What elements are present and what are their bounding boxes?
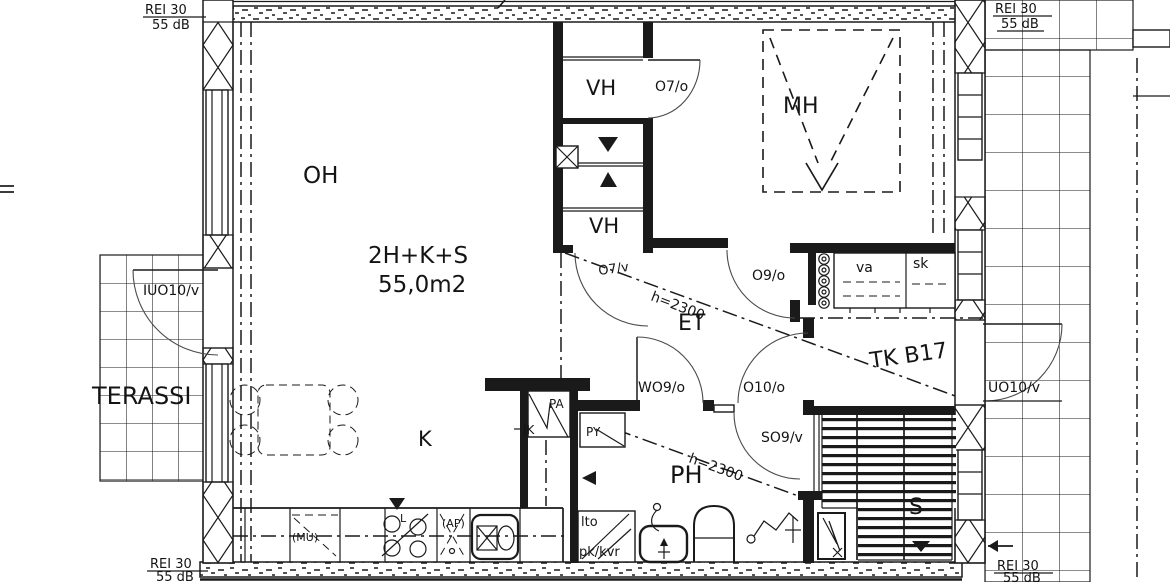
- fixture-label-stove: L: [400, 512, 407, 525]
- fire-rating-label-top-right: REI 30: [995, 2, 1037, 17]
- fixture-label-freezer: PA: [549, 397, 564, 411]
- fixture-label-cleaning-cabinet: sk: [913, 256, 929, 272]
- unit-type-label: 2H+K+S: [368, 243, 468, 269]
- hall-cabinets: [819, 253, 955, 313]
- room-label-terrace: TERASSI: [91, 382, 192, 410]
- door-label-bathroom: WO9/o: [638, 380, 685, 396]
- window-left-lower: [206, 364, 228, 482]
- floor-plan-drawing: REI 30 55 dB REI 30 55 dB REI 30 55 dB R…: [0, 0, 1170, 582]
- window-right-lower: [958, 450, 982, 520]
- room-label-sauna: S: [909, 495, 923, 520]
- room-label-closet-lower: VH: [589, 214, 619, 238]
- balcony-step: [1133, 30, 1170, 47]
- sound-rating-label-top-right: 55 dB: [1001, 17, 1039, 32]
- room-label-kitchen: K: [418, 427, 433, 451]
- room-label-bedroom: MH: [783, 94, 819, 119]
- sauna-interior: [818, 415, 956, 560]
- door-label-balcony: UO10/v: [988, 380, 1040, 396]
- door-label-sauna: SO9/v: [761, 430, 803, 446]
- unit-area-label: 55,0m2: [378, 272, 466, 298]
- fixture-label-wardrobe: va: [856, 260, 873, 276]
- sauna-heater-icon: [818, 513, 845, 559]
- door-label-hall: O10/o: [743, 380, 785, 396]
- fixture-label-heat-recovery: lto: [581, 515, 598, 530]
- fixture-label-washer-dryer: pk/kvr: [579, 545, 620, 560]
- floor-plan: REI 30 55 dB REI 30 55 dB REI 30 55 dB R…: [0, 0, 1170, 582]
- fixture-label-dishwasher: (AP): [442, 517, 465, 530]
- fixture-label-fridge: JK: [522, 423, 536, 437]
- room-label-closet-upper: VH: [586, 76, 616, 100]
- sauna-benches: [822, 415, 956, 508]
- fixture-label-washing-machine: PY: [586, 425, 601, 439]
- window-right-mid: [958, 230, 982, 300]
- door-label-closet-upper: O7/o: [655, 79, 688, 95]
- door-label-bedroom: O9/o: [752, 268, 785, 284]
- room-label-living: OH: [303, 163, 338, 189]
- sound-rating-label-top-left: 55 dB: [152, 18, 190, 33]
- sound-rating-label-bottom-right: 55 dB: [1003, 571, 1041, 582]
- door-label-terrace: IUO10/v: [143, 283, 199, 299]
- sound-rating-label-bottom-left: 55 dB: [156, 570, 194, 582]
- fire-rating-label-top-left: REI 30: [145, 3, 187, 18]
- window-left-upper: [206, 90, 228, 235]
- fixture-label-microwave: (MU): [292, 531, 318, 544]
